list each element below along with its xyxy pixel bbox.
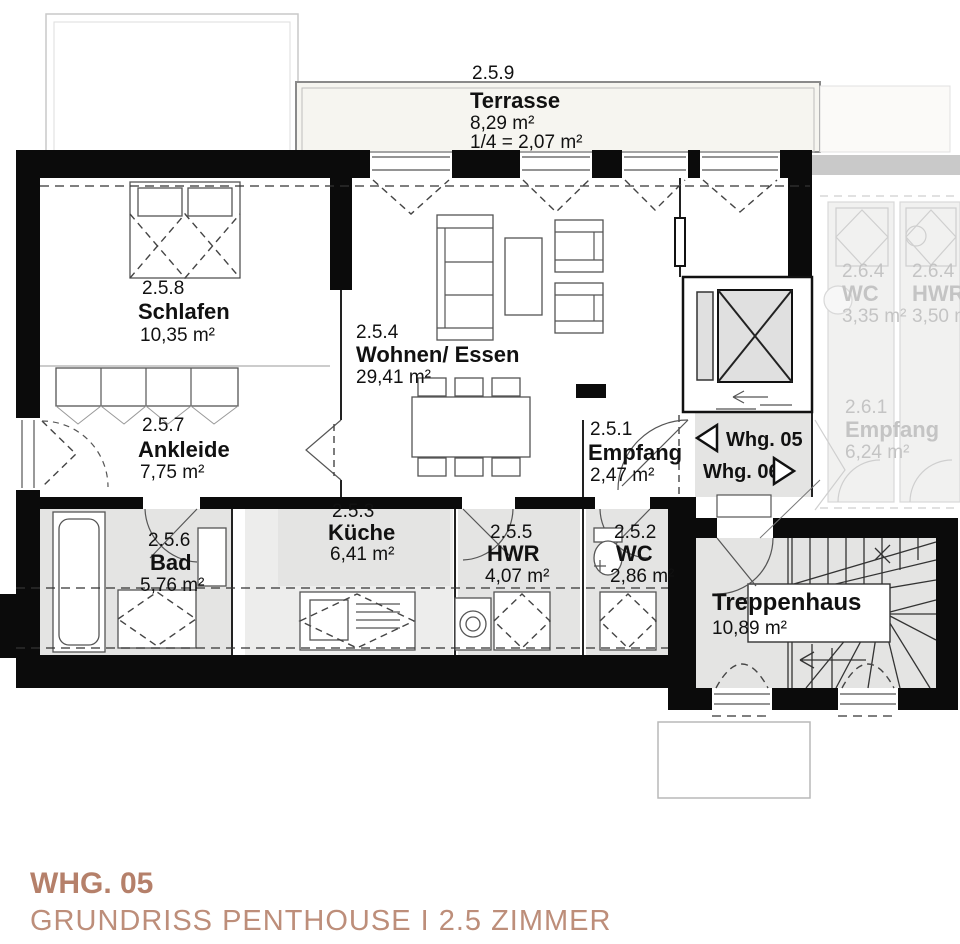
neighbor-hwr-name: HWR: [912, 281, 960, 306]
kueche-name: Küche: [328, 520, 395, 545]
window-icon: [22, 420, 108, 488]
neighbor-wc-area: 3,35 m²: [842, 306, 906, 327]
neighbor-wc-number: 2.6.4: [842, 261, 885, 282]
hwr-number: 2.5.5: [490, 522, 532, 543]
balcony-outline: [658, 722, 810, 798]
roof-outline: [46, 14, 298, 152]
empfang-number: 2.5.1: [590, 419, 632, 440]
terrace-area: 8,29 m²: [470, 113, 534, 134]
window-icon: [522, 157, 590, 212]
terrace-name: Terrasse: [470, 88, 560, 113]
schlafen-name: Schlafen: [138, 299, 230, 324]
wohnen-area: 29,41 m²: [356, 367, 431, 388]
armchair-icon: [555, 283, 603, 333]
corridor-whg05-label: Whg. 05: [726, 429, 803, 451]
door-icon: [306, 420, 341, 480]
neighbor-hwr-number: 2.6.4: [912, 261, 955, 282]
wohnen-number: 2.5.4: [356, 322, 399, 343]
wc-name: WC: [616, 541, 653, 566]
treppenhaus-name: Treppenhaus: [712, 589, 861, 616]
footer-subtitle: GRUNDRISS PENTHOUSE I 2.5 ZIMMER: [30, 905, 611, 937]
footer: WHG. 05 GRUNDRISS PENTHOUSE I 2.5 ZIMMER: [30, 867, 611, 937]
bed-icon: [130, 182, 240, 278]
kueche-area: 6,41 m²: [330, 544, 394, 565]
floorplan-page: 2.5.9 Terrasse 8,29 m² 1/4 = 2,07 m² 2.6…: [0, 0, 960, 944]
wohnen-name: Wohnen/ Essen: [356, 342, 519, 367]
kueche-number: 2.5.3: [332, 501, 374, 522]
wc-area: 2,86 m²: [610, 566, 674, 587]
washing-machine-icon: [455, 598, 491, 650]
sofa-icon: [437, 215, 493, 340]
corridor-whg06-label: Whg. 06: [703, 461, 780, 483]
ankleide-number: 2.5.7: [142, 415, 184, 436]
window-icon: [702, 157, 778, 212]
kitchen-sink-icon: [300, 592, 415, 650]
ankleide-area: 7,75 m²: [140, 462, 204, 483]
bad-name: Bad: [150, 550, 192, 575]
neighbor-empfang-name: Empfang: [845, 417, 939, 442]
empfang-name: Empfang: [588, 440, 682, 465]
neighbor-empfang-number: 2.6.1: [845, 397, 887, 418]
neighbor-apartment: 2.6.4 WC 3,35 m² 2.6.4 HWR 3,50 m² 2.6.1…: [812, 155, 960, 510]
treppenhaus-area: 10,89 m²: [712, 618, 787, 639]
empfang-area: 2,47 m²: [590, 465, 654, 486]
hwr-area: 4,07 m²: [485, 566, 549, 587]
elevator-icon: [683, 277, 812, 412]
roof-window-icon: [494, 592, 550, 650]
neighbor-empfang-area: 6,24 m²: [845, 442, 909, 463]
terrace-share: 1/4 = 2,07 m²: [470, 132, 582, 153]
window-icon: [624, 157, 686, 210]
bad-number: 2.5.6: [148, 530, 190, 551]
armchair-icon: [555, 220, 603, 272]
roof-window-icon: [118, 590, 196, 648]
schlafen-number: 2.5.8: [142, 278, 184, 299]
terrace-number: 2.5.9: [472, 63, 514, 84]
schlafen-area: 10,35 m²: [140, 325, 215, 346]
bad-area: 5,76 m²: [140, 575, 204, 596]
hwr-name: HWR: [487, 541, 540, 566]
dining-table-icon: [412, 378, 530, 476]
neighbor-wc-name: WC: [842, 281, 879, 306]
footer-title: WHG. 05: [30, 867, 153, 900]
neighbor-hwr-area: 3,50 m²: [912, 306, 960, 327]
roof-window-icon: [600, 592, 656, 650]
terrace: 2.5.9 Terrasse 8,29 m² 1/4 = 2,07 m²: [296, 63, 950, 153]
coffee-table-icon: [505, 238, 542, 315]
wc-number: 2.5.2: [614, 522, 656, 543]
floorplan-drawing: 2.5.9 Terrasse 8,29 m² 1/4 = 2,07 m² 2.6…: [0, 0, 960, 944]
bathtub-icon: [53, 512, 105, 652]
ankleide-name: Ankleide: [138, 437, 230, 462]
